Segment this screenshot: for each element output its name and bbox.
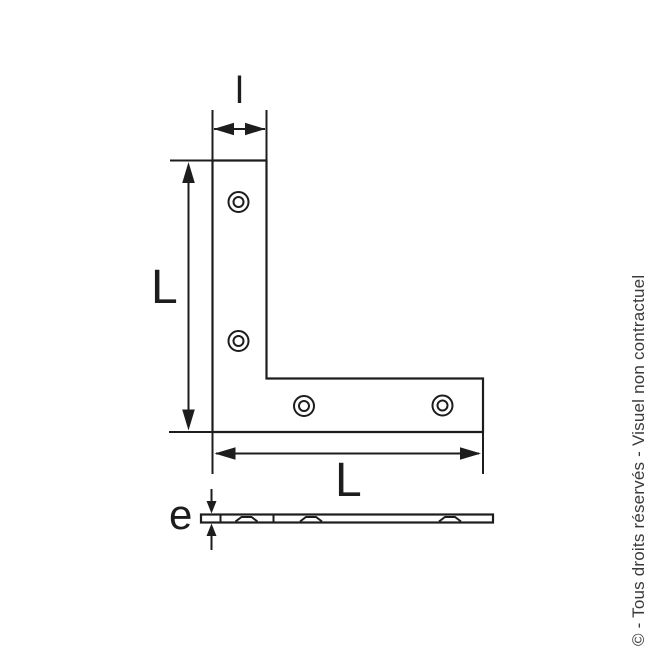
arrowhead-down-icon: [207, 501, 217, 514]
arrowhead-up-icon: [207, 524, 217, 537]
dimension-horizontal-length: L: [213, 432, 484, 507]
arrowhead-left-icon: [215, 447, 236, 460]
dimension-arm-width: l: [213, 70, 267, 161]
label-vertical-length: L: [151, 261, 178, 314]
edge-profile: [201, 515, 493, 523]
dimension-vertical-length: L: [151, 161, 213, 433]
arrowhead-right-icon: [460, 447, 481, 460]
bracket-front-view: [213, 161, 484, 433]
arrowhead-right-icon: [245, 123, 266, 135]
corner-bracket-technical-drawing: l L L: [0, 0, 650, 650]
bracket-outline: [213, 161, 484, 433]
label-arm-width: l: [235, 70, 243, 112]
copyright-watermark: © - Tous droits réservés - Visuel non co…: [629, 275, 649, 646]
diagram-canvas: l L L: [0, 0, 650, 650]
label-thickness: e: [169, 491, 192, 538]
arrowhead-left-icon: [214, 123, 235, 135]
label-horizontal-length: L: [335, 454, 362, 507]
bracket-edge-view: [201, 515, 493, 523]
arrowhead-down-icon: [182, 410, 195, 431]
arrowhead-up-icon: [182, 162, 195, 183]
